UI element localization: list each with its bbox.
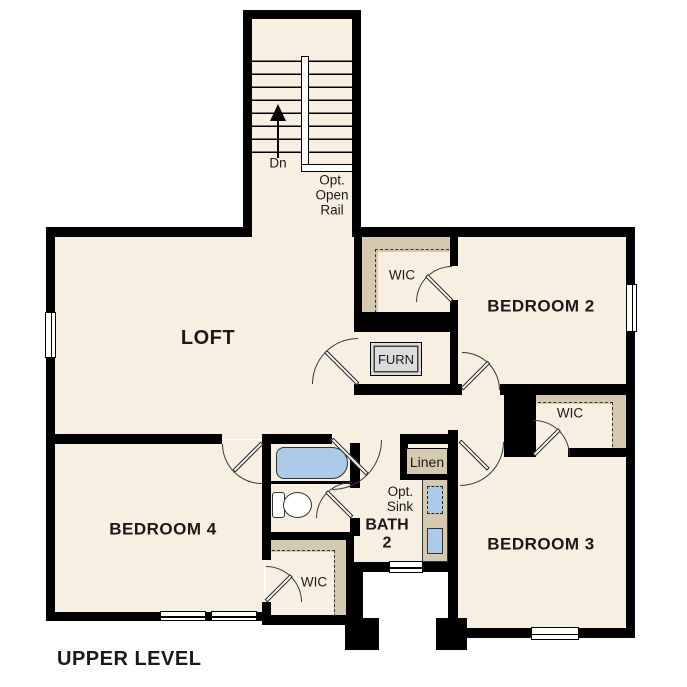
window-mullion bbox=[532, 634, 578, 636]
window bbox=[160, 611, 206, 621]
stairs-direction-arrowhead-icon bbox=[270, 104, 286, 121]
wall-segment bbox=[354, 236, 362, 314]
room-label-wic-bottom: WIC bbox=[301, 576, 327, 591]
stair-rail-horizontal bbox=[301, 164, 353, 172]
wall-segment bbox=[436, 618, 467, 650]
wall-segment bbox=[354, 312, 458, 332]
wall-segment bbox=[46, 434, 222, 444]
window bbox=[45, 312, 56, 358]
stairs-direction-arrow-icon bbox=[277, 120, 279, 158]
room-label-bedroom3: BEDROOM 3 bbox=[487, 536, 594, 555]
window-mullion bbox=[161, 616, 205, 618]
wall-segment bbox=[243, 10, 252, 237]
window bbox=[531, 627, 579, 640]
stair-rail-vertical bbox=[301, 56, 309, 168]
toilet-bowl bbox=[283, 492, 312, 518]
wall-segment bbox=[450, 236, 458, 266]
wall-segment bbox=[346, 532, 354, 624]
wall-segment bbox=[568, 448, 626, 457]
linen-label: Linen bbox=[410, 454, 444, 470]
wall-segment bbox=[352, 227, 635, 237]
room-label-wic-top: WIC bbox=[389, 269, 415, 284]
room-label-loft: LOFT bbox=[181, 327, 235, 349]
optional-sink-label: Opt. Sink bbox=[387, 485, 413, 515]
optional-sink bbox=[427, 486, 443, 514]
floor-plan: FURN Linen bbox=[0, 0, 687, 687]
window-mullion bbox=[390, 567, 422, 569]
linen-closet: Linen bbox=[406, 448, 448, 475]
sink bbox=[427, 528, 443, 554]
wall-segment bbox=[262, 532, 354, 540]
wall-segment bbox=[262, 434, 332, 444]
wall-segment bbox=[262, 434, 271, 560]
wall-segment bbox=[262, 615, 354, 625]
window bbox=[211, 611, 257, 621]
room-label-bath2: BATH 2 bbox=[365, 516, 408, 551]
wall-segment bbox=[243, 10, 361, 19]
stairs-down-label: Dn bbox=[269, 157, 286, 172]
furnace-label: FURN bbox=[378, 352, 414, 367]
furnace-unit: FURN bbox=[370, 342, 422, 376]
wall-segment bbox=[448, 430, 458, 572]
pass-through-window bbox=[389, 561, 423, 573]
room-label-bedroom4: BEDROOM 4 bbox=[109, 521, 216, 540]
window bbox=[626, 284, 637, 332]
wall-segment bbox=[504, 390, 536, 457]
wall-segment bbox=[352, 10, 361, 237]
room-label-wic-right: WIC bbox=[557, 407, 583, 422]
stair-treads-right bbox=[302, 49, 352, 168]
plan-title: UPPER LEVEL bbox=[57, 648, 201, 671]
window-mullion bbox=[212, 616, 256, 618]
window-mullion bbox=[632, 285, 634, 331]
wall-segment bbox=[345, 618, 379, 650]
wall-segment bbox=[354, 384, 462, 395]
optional-rail-label: Opt. Open Rail bbox=[315, 174, 348, 219]
wall-segment bbox=[450, 300, 458, 395]
window-mullion bbox=[51, 313, 53, 357]
room-label-bedroom2: BEDROOM 2 bbox=[487, 298, 594, 317]
wall-segment bbox=[46, 227, 55, 621]
wall-segment bbox=[46, 227, 252, 237]
